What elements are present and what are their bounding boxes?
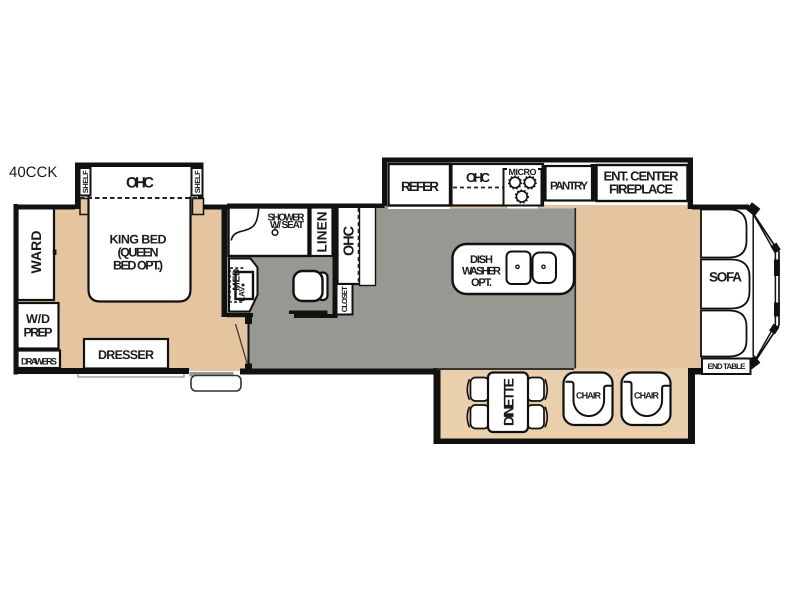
svg-text:W/D: W/D	[26, 312, 50, 326]
svg-text:REFER: REFER	[401, 179, 439, 194]
svg-text:DISH: DISH	[470, 254, 493, 266]
svg-text:CHAIR: CHAIR	[634, 390, 660, 400]
svg-text:BED OPT.): BED OPT.)	[113, 259, 163, 273]
svg-text:(QUEEN: (QUEEN	[118, 246, 159, 260]
svg-text:MICRO: MICRO	[509, 167, 537, 177]
svg-text:KING BED: KING BED	[110, 233, 167, 247]
svg-text:OHC: OHC	[342, 225, 358, 256]
svg-text:PANTRY: PANTRY	[550, 181, 588, 193]
svg-text:PREP: PREP	[24, 325, 53, 339]
svg-text:DINETTE: DINETTE	[501, 378, 517, 426]
svg-text:CLOSET: CLOSET	[340, 286, 349, 312]
svg-text:DRESSER: DRESSER	[98, 348, 154, 362]
svg-text:OHC: OHC	[126, 175, 154, 192]
svg-text:WARD: WARD	[28, 231, 44, 274]
svg-text:DRAWERS: DRAWERS	[21, 356, 57, 366]
svg-text:OHC: OHC	[466, 170, 491, 185]
svg-text:LAV: LAV	[238, 286, 247, 302]
svg-text:OPT.: OPT.	[471, 277, 492, 289]
svg-text:LINEN: LINEN	[315, 212, 330, 253]
svg-text:SOFA: SOFA	[709, 270, 742, 285]
svg-text:SHELF: SHELF	[81, 170, 90, 193]
svg-text:CHAIR: CHAIR	[576, 390, 602, 400]
svg-text:WASHER: WASHER	[462, 266, 501, 278]
svg-text:40CCK: 40CCK	[9, 164, 57, 181]
svg-text:END TABLE: END TABLE	[708, 362, 747, 371]
svg-text:SHELF: SHELF	[193, 170, 202, 193]
svg-text:FIREPLACE: FIREPLACE	[609, 182, 673, 197]
